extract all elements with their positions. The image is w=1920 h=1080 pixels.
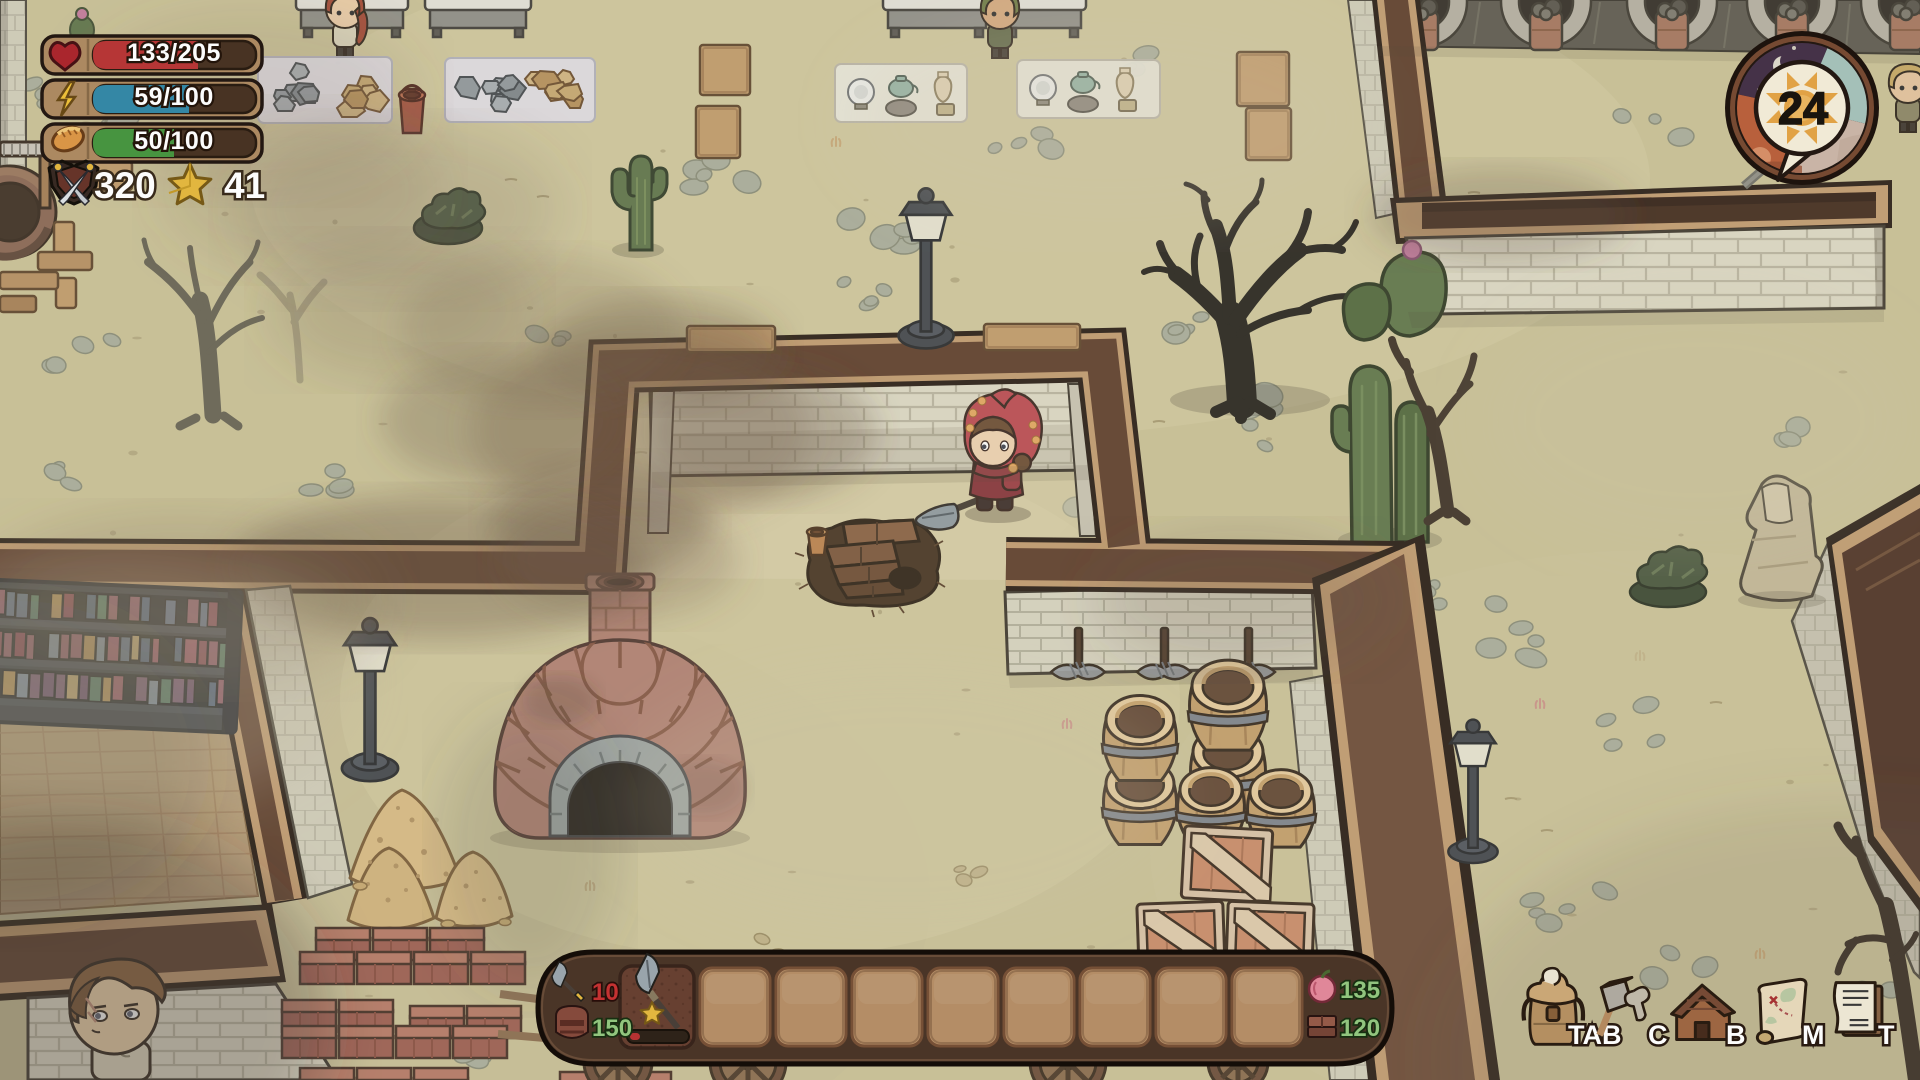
svg-text:TAB: TAB [1568, 1020, 1622, 1050]
svg-text:24: 24 [1778, 83, 1828, 134]
svg-text:10: 10 [592, 979, 619, 1006]
svg-text:B: B [1726, 1020, 1746, 1050]
svg-text:135: 135 [1340, 977, 1380, 1004]
svg-text:T: T [1878, 1020, 1895, 1050]
svg-text:50/100: 50/100 [134, 127, 213, 155]
svg-text:M: M [1802, 1020, 1825, 1050]
svg-text:320: 320 [94, 165, 156, 206]
svg-text:41: 41 [224, 165, 265, 206]
svg-text:133/205: 133/205 [127, 39, 221, 67]
svg-text:150: 150 [592, 1015, 632, 1042]
svg-text:59/100: 59/100 [134, 83, 213, 111]
svg-text:120: 120 [1340, 1015, 1380, 1042]
svg-text:C: C [1648, 1020, 1668, 1050]
